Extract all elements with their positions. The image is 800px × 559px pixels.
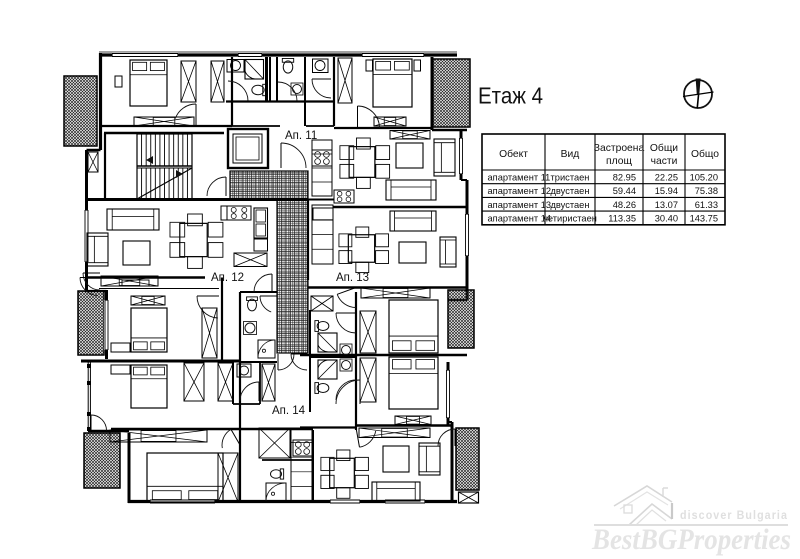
svg-text:тристаен: тристаен — [551, 173, 590, 183]
svg-text:48.26: 48.26 — [613, 200, 636, 210]
svg-text:discover Bulgaria: discover Bulgaria — [680, 508, 788, 522]
svg-text:13.07: 13.07 — [655, 200, 678, 210]
svg-text:30.40: 30.40 — [655, 214, 678, 224]
svg-text:Ап. 12: Ап. 12 — [211, 272, 244, 284]
svg-text:BestBGProperties: BestBGProperties — [591, 523, 791, 556]
svg-text:22.25: 22.25 — [655, 173, 678, 183]
svg-text:Ап. 14: Ап. 14 — [272, 405, 306, 417]
svg-text:105.20: 105.20 — [690, 173, 718, 183]
svg-text:75.38: 75.38 — [695, 186, 718, 196]
svg-text:двустаен: двустаен — [551, 200, 590, 210]
svg-text:части: части — [651, 156, 678, 167]
svg-text:59.44: 59.44 — [613, 186, 636, 196]
svg-text:143.75: 143.75 — [690, 214, 718, 224]
svg-text:Етаж 4: Етаж 4 — [478, 83, 543, 109]
svg-text:четиристаен: четиристаен — [543, 214, 597, 224]
svg-text:Общи: Общи — [650, 142, 678, 154]
svg-text:апартамент 12: апартамент 12 — [488, 186, 552, 196]
svg-text:апартамент 14: апартамент 14 — [488, 214, 552, 224]
svg-text:Общо: Общо — [691, 148, 719, 160]
svg-text:Вид: Вид — [561, 149, 580, 160]
svg-text:113.35: 113.35 — [608, 214, 636, 224]
svg-text:Обект: Обект — [499, 148, 528, 160]
svg-text:82.95: 82.95 — [613, 173, 636, 183]
svg-text:площ: площ — [606, 156, 632, 167]
svg-text:61.33: 61.33 — [695, 200, 718, 210]
svg-text:15.94: 15.94 — [655, 186, 678, 196]
svg-text:апартамент 13: апартамент 13 — [488, 200, 552, 210]
svg-text:Ап. 13: Ап. 13 — [336, 272, 369, 284]
svg-text:Застроена: Застроена — [594, 143, 645, 154]
svg-text:двустаен: двустаен — [551, 186, 590, 196]
svg-text:апартамент 11: апартамент 11 — [488, 173, 551, 183]
